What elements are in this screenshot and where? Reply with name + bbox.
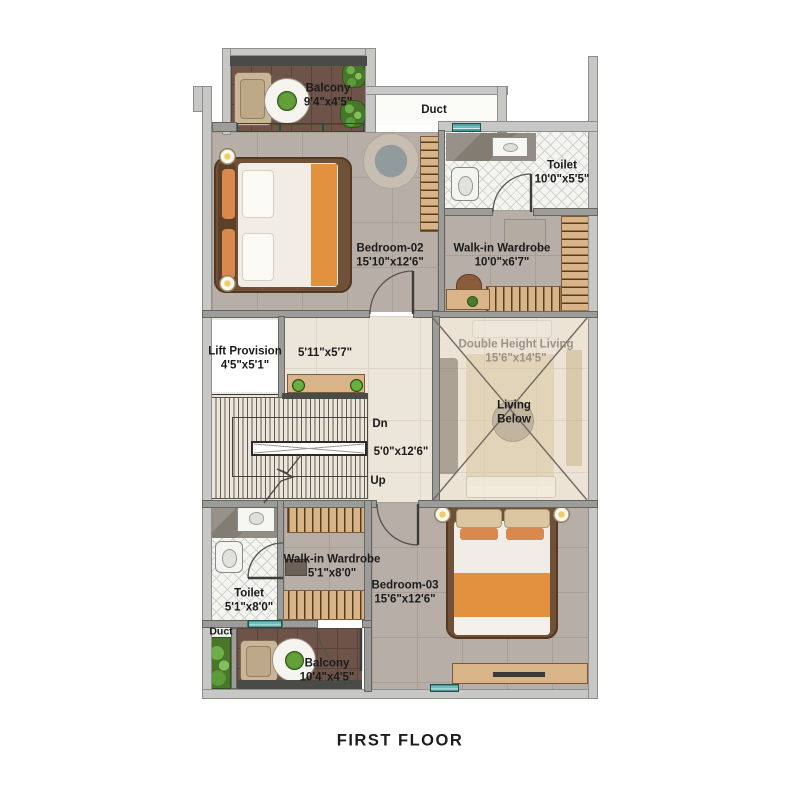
- wall: [202, 310, 370, 318]
- nightstand-lamp: [219, 275, 236, 292]
- window: [430, 684, 459, 692]
- window: [248, 620, 282, 628]
- balcony-top-label: Balcony 9'4"x4'5": [304, 82, 352, 111]
- bed-02-pillow: [222, 229, 235, 279]
- duct-bottom-plants: [209, 637, 231, 689]
- ghost-tv-unit: [566, 350, 582, 466]
- wall: [438, 130, 445, 316]
- nightstand-lamp: [553, 506, 570, 523]
- bedroom-03-bench: [452, 663, 588, 684]
- wall: [432, 311, 598, 318]
- foyer-dim-label: 5'11"x5'7": [298, 346, 352, 360]
- stairs-up-label: Up: [370, 474, 385, 488]
- toilet-bottom-wc: [215, 541, 243, 573]
- wall: [212, 122, 237, 132]
- bed-03-duvet: [454, 573, 550, 617]
- wall: [193, 86, 203, 112]
- nightstand-lamp: [219, 148, 236, 165]
- wardrobe-top-label: Walk-in Wardrobe 10'0"x6'7": [454, 242, 551, 271]
- console-plant: [292, 379, 305, 392]
- window: [452, 123, 481, 132]
- wall: [282, 620, 318, 628]
- nightstand-lamp: [434, 506, 451, 523]
- stairs-down-label: Dn: [372, 417, 387, 431]
- bed-03-pillow-tan: [456, 509, 502, 528]
- ghost-sofa-top: [472, 320, 552, 338]
- toilet-bottom-vanity: [237, 504, 275, 532]
- wall: [202, 500, 377, 508]
- wall: [365, 86, 508, 95]
- bed-03-pillow-tan: [504, 509, 550, 528]
- duct-bottom-label: Duct: [209, 625, 232, 638]
- desk-plant: [467, 296, 478, 307]
- bed-02-throw: [311, 164, 337, 286]
- bedroom-02-rug: [363, 133, 419, 189]
- bench-runner: [493, 672, 545, 677]
- wall: [418, 500, 598, 508]
- window: [237, 123, 364, 132]
- stair-landing-bar: [251, 441, 367, 456]
- bedroom-03-label: Bedroom-03 15'6"x12'6": [371, 579, 438, 608]
- bedroom-02-label: Bedroom-02 15'10"x12'6": [356, 242, 424, 271]
- bed-02-pillow-white: [242, 170, 274, 218]
- wall: [222, 48, 376, 56]
- wardrobe-top-unit-bottom: [486, 286, 562, 313]
- console-plant: [350, 379, 363, 392]
- bed-bedroom-03: [446, 503, 558, 639]
- lift-provision-label: Lift Provision 4'5"x5'1": [208, 345, 281, 374]
- duct-top-label: Duct: [421, 103, 447, 117]
- floor-plan: Balcony 9'4"x4'5" Duct Toilet 10'0"x5'5"…: [0, 0, 800, 800]
- toilet-top-sink: [492, 137, 528, 157]
- wall: [444, 208, 493, 216]
- wardrobe-bottom-label: Walk-in Wardrobe 5'1"x8'0": [284, 553, 381, 582]
- dressing-table: [446, 289, 490, 310]
- wall: [202, 86, 212, 698]
- toilet-top-label: Toilet 10'0"x5'5": [535, 159, 590, 188]
- toilet-bottom-label: Toilet 5'1"x8'0": [225, 587, 273, 616]
- balcony-bottom-label: Balcony 10'4"x4'5": [300, 657, 355, 686]
- toilet-top-wc: [451, 167, 479, 201]
- balcony-top-railing: [230, 56, 367, 66]
- wall: [533, 208, 598, 216]
- wall: [202, 689, 598, 699]
- ghost-sofa-bottom: [466, 476, 556, 498]
- living-below-label: Living Below: [497, 399, 531, 428]
- double-height-living-label: Double Height Living 15'6"x14'5": [459, 338, 574, 367]
- bed-03-pillow-orange: [506, 528, 544, 540]
- bed-02-pillow: [222, 169, 235, 219]
- stair-top-edge: [282, 393, 368, 399]
- foyer-console: [287, 374, 365, 393]
- bed-03-foot-strip: [454, 617, 550, 635]
- wall: [432, 316, 440, 506]
- wall: [362, 620, 372, 628]
- wall: [588, 56, 598, 699]
- bed-bedroom-02: [214, 157, 352, 293]
- bed-02-pillow-white: [242, 233, 274, 281]
- plan-title: FIRST FLOOR: [337, 732, 464, 751]
- wardrobe-bottom-unit-bottom: [279, 590, 365, 620]
- bed-03-pillow-orange: [460, 528, 498, 540]
- stairs-dim-label: 5'0"x12'6": [374, 445, 429, 459]
